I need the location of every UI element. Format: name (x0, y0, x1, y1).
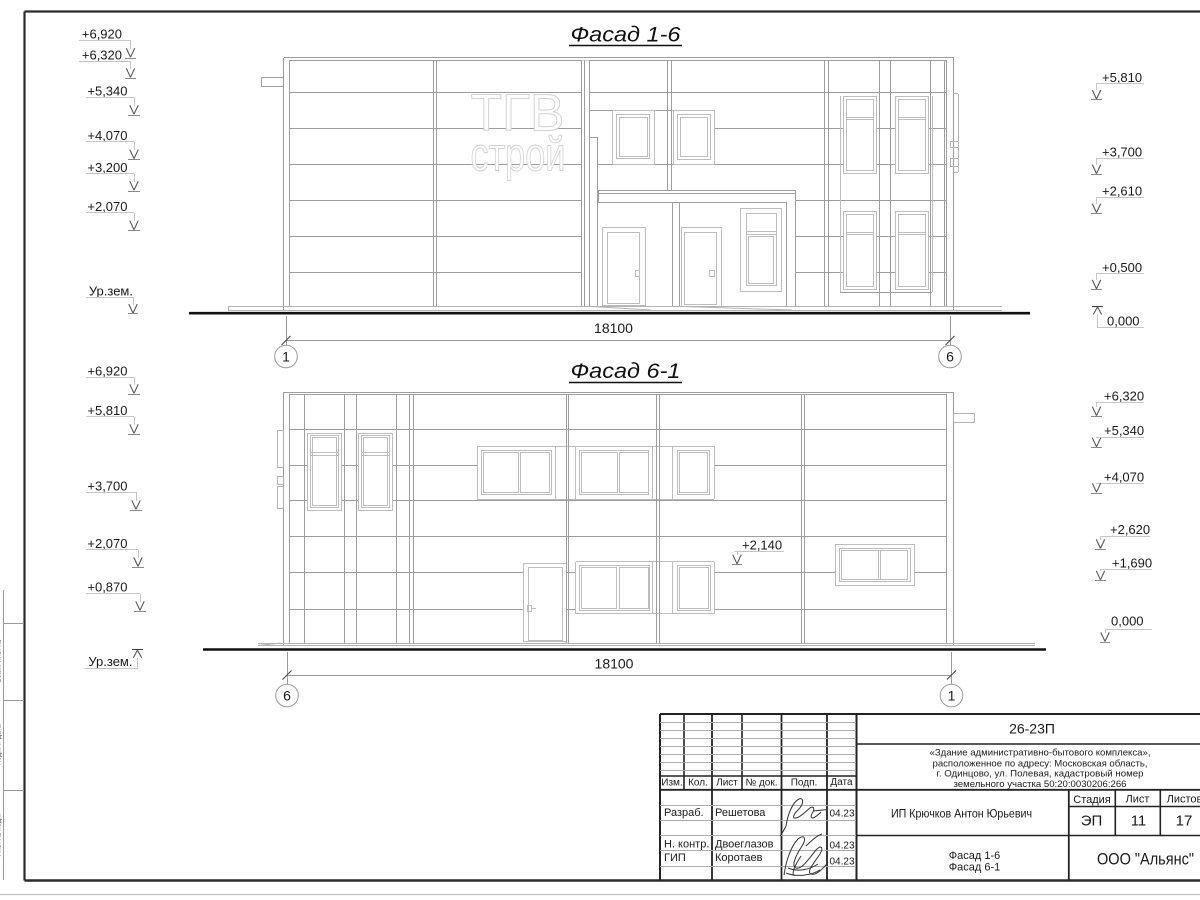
svg-text:+5,340: +5,340 (87, 83, 127, 98)
svg-text:+3,700: +3,700 (1102, 145, 1142, 160)
svg-text:Ур.зем.: Ур.зем. (88, 654, 132, 669)
svg-text:Изм.: Изм. (661, 778, 682, 789)
svg-text:+4,070: +4,070 (1104, 469, 1144, 484)
svg-text:Дата: Дата (830, 777, 853, 788)
svg-text:26-23П: 26-23П (1009, 721, 1055, 737)
svg-text:11: 11 (1131, 813, 1147, 830)
svg-text:+2,620: +2,620 (1110, 522, 1150, 537)
svg-text:+6,920: +6,920 (87, 363, 127, 378)
svg-text:Листов: Листов (1167, 794, 1200, 806)
svg-text:Взам. инв. №: Взам. инв. № (0, 639, 3, 682)
svg-text:Н. контр.: Н. контр. (664, 839, 709, 851)
svg-text:1: 1 (948, 688, 956, 704)
svg-text:Фасад 1-6: Фасад 1-6 (949, 850, 1000, 862)
svg-text:Подп. и дата: Подп. и дата (0, 724, 3, 765)
svg-text:+3,200: +3,200 (87, 160, 127, 175)
svg-text:Фасад 1-6: Фасад 1-6 (571, 24, 681, 47)
svg-text:ЭП: ЭП (1081, 813, 1103, 830)
svg-text:0,000: 0,000 (1111, 614, 1144, 629)
svg-text:+2,140: +2,140 (742, 538, 782, 553)
svg-text:Лист: Лист (1126, 794, 1150, 806)
svg-text:+3,700: +3,700 (87, 479, 127, 494)
svg-text:+5,810: +5,810 (1102, 70, 1142, 85)
svg-text:+4,070: +4,070 (87, 128, 127, 143)
svg-text:ООО "Альянс": ООО "Альянс" (1097, 851, 1194, 869)
svg-text:+5,340: +5,340 (1104, 423, 1144, 438)
svg-text:Решетова: Решетова (715, 807, 766, 819)
svg-text:+6,320: +6,320 (1104, 388, 1144, 403)
svg-text:+6,920: +6,920 (82, 27, 122, 42)
svg-text:04.23: 04.23 (829, 841, 854, 852)
svg-text:Подп.: Подп. (791, 778, 818, 789)
svg-text:Фасад 6-1: Фасад 6-1 (949, 862, 1000, 874)
svg-text:ИП Крючков Антон Юрьевич: ИП Крючков Антон Юрьевич (891, 809, 1032, 821)
svg-text:18100: 18100 (595, 656, 634, 672)
svg-text:0,000: 0,000 (1107, 314, 1140, 329)
svg-text:Инв. № подл.: Инв. № подл. (0, 813, 3, 857)
svg-text:Кол.: Кол. (688, 778, 708, 789)
svg-text:+6,320: +6,320 (82, 48, 122, 63)
svg-text:Фасад 6-1: Фасад 6-1 (571, 360, 681, 383)
svg-text:6: 6 (946, 349, 954, 365)
svg-text:+2,610: +2,610 (1102, 184, 1142, 199)
svg-text:04.23: 04.23 (829, 809, 854, 820)
svg-text:строй: строй (471, 128, 566, 181)
svg-text:+0,500: +0,500 (1102, 260, 1142, 275)
svg-text:+2,070: +2,070 (87, 536, 127, 551)
svg-text:Коротаев: Коротаев (715, 852, 763, 864)
svg-text:Двоеглазов: Двоеглазов (715, 839, 774, 851)
svg-text:№ док.: № док. (745, 778, 777, 789)
svg-text:ГИП: ГИП (664, 852, 686, 864)
svg-text:Ур.зем.: Ур.зем. (89, 284, 133, 299)
svg-text:Лист: Лист (716, 778, 738, 789)
svg-text:18100: 18100 (594, 320, 633, 336)
svg-text:земельного участка 50:20:00302: земельного участка 50:20:0030206:266 (954, 779, 1127, 790)
svg-text:1: 1 (282, 349, 290, 365)
svg-text:6: 6 (283, 688, 291, 704)
svg-text:Стадия: Стадия (1073, 794, 1111, 806)
svg-text:17: 17 (1176, 813, 1193, 830)
svg-text:+2,070: +2,070 (87, 199, 127, 214)
svg-text:+0,870: +0,870 (87, 580, 127, 595)
svg-text:+1,690: +1,690 (1112, 555, 1152, 570)
svg-text:«Здание административно-бытово: «Здание административно-бытового комплек… (930, 748, 1151, 759)
svg-text:+5,810: +5,810 (87, 403, 127, 418)
svg-text:Разраб.: Разраб. (664, 807, 704, 819)
svg-text:04.23: 04.23 (829, 857, 854, 868)
